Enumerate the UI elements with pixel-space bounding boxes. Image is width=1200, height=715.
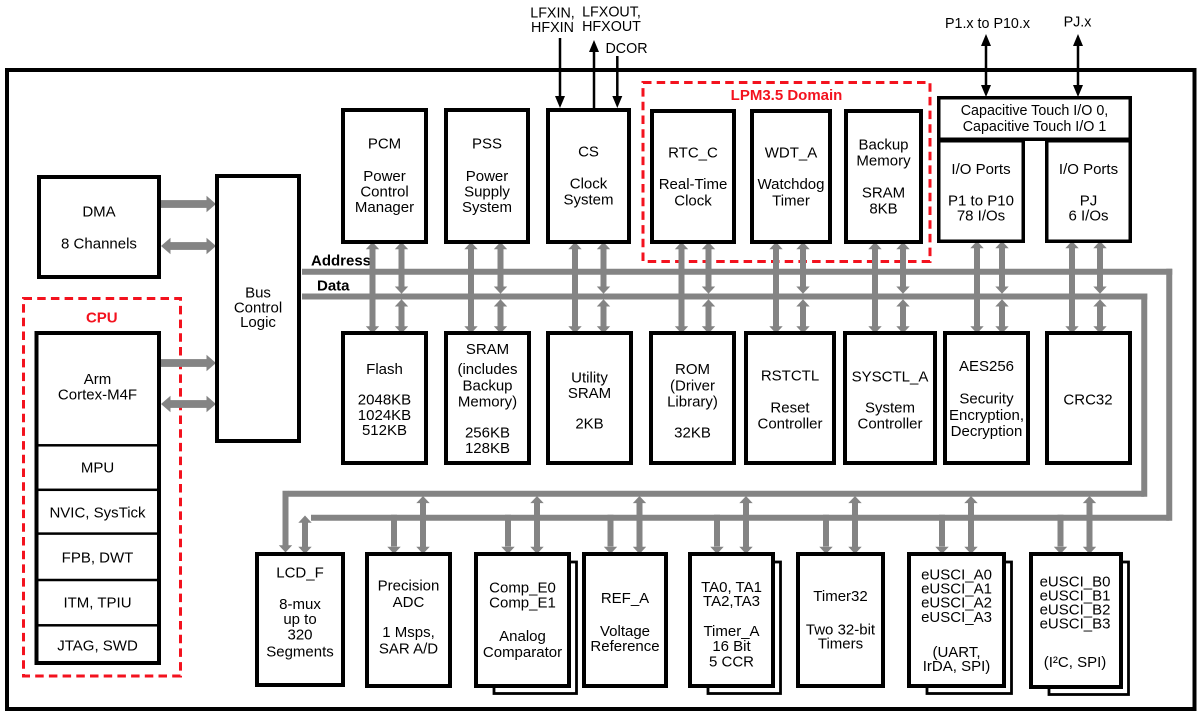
- svg-text:(I²C, SPI): (I²C, SPI): [1044, 654, 1107, 671]
- svg-text:PCM: PCM: [368, 136, 401, 153]
- svg-text:512KB: 512KB: [362, 422, 407, 439]
- svg-text:System: System: [462, 199, 512, 216]
- svg-text:NVIC, SysTick: NVIC, SysTick: [49, 505, 146, 522]
- svg-text:CPU: CPU: [86, 310, 118, 327]
- svg-text:RSTCTL: RSTCTL: [761, 368, 819, 385]
- svg-text:AES256: AES256: [959, 358, 1014, 375]
- svg-text:DMA: DMA: [82, 204, 115, 221]
- svg-text:SRAM: SRAM: [862, 185, 905, 202]
- svg-text:RTC_C: RTC_C: [668, 145, 718, 162]
- svg-text:Controller: Controller: [857, 416, 922, 433]
- svg-text:P1.x to P10.x: P1.x to P10.x: [945, 16, 1030, 32]
- svg-text:System: System: [865, 400, 915, 417]
- svg-text:JTAG, SWD: JTAG, SWD: [57, 638, 138, 655]
- svg-text:Reset: Reset: [770, 400, 810, 417]
- svg-text:Clock: Clock: [674, 193, 712, 210]
- svg-text:Address: Address: [311, 253, 371, 270]
- svg-text:ADC: ADC: [393, 594, 425, 611]
- svg-text:78 I/Os: 78 I/Os: [957, 208, 1005, 225]
- svg-text:Real-Time: Real-Time: [659, 176, 728, 193]
- svg-text:FPB, DWT: FPB, DWT: [62, 550, 134, 567]
- svg-text:Library): Library): [667, 394, 718, 411]
- svg-text:Security: Security: [959, 391, 1014, 408]
- svg-text:Clock: Clock: [570, 176, 608, 193]
- svg-text:eUSCI_A3: eUSCI_A3: [921, 609, 992, 626]
- svg-text:ITM, TPIU: ITM, TPIU: [63, 595, 131, 612]
- svg-text:Utility: Utility: [571, 370, 608, 387]
- svg-text:Power: Power: [363, 168, 406, 185]
- svg-text:Arm: Arm: [84, 371, 112, 388]
- svg-text:(includes: (includes: [457, 361, 517, 378]
- svg-text:320: 320: [287, 627, 312, 644]
- svg-text:Encryption,: Encryption,: [949, 407, 1024, 424]
- svg-text:(Driver: (Driver: [670, 378, 715, 395]
- svg-text:Logic: Logic: [240, 314, 276, 331]
- svg-text:CRC32: CRC32: [1063, 392, 1112, 409]
- svg-text:ROM: ROM: [675, 361, 710, 378]
- svg-text:Control: Control: [360, 184, 408, 201]
- svg-text:PJ.x: PJ.x: [1064, 15, 1092, 31]
- svg-text:LPM3.5 Domain: LPM3.5 Domain: [731, 87, 843, 104]
- svg-text:up to: up to: [283, 611, 316, 628]
- svg-text:HFXIN: HFXIN: [531, 20, 574, 36]
- svg-text:8KB: 8KB: [869, 201, 897, 218]
- svg-text:Controller: Controller: [757, 416, 822, 433]
- svg-text:2KB: 2KB: [575, 416, 603, 433]
- svg-text:HFXOUT: HFXOUT: [582, 19, 641, 35]
- svg-text:MPU: MPU: [81, 460, 114, 477]
- svg-text:Precision: Precision: [378, 578, 440, 595]
- svg-text:eUSCI_B3: eUSCI_B3: [1040, 616, 1111, 633]
- svg-text:Data: Data: [317, 278, 350, 295]
- svg-text:Comp_E1: Comp_E1: [489, 595, 556, 612]
- svg-text:16 Bit: 16 Bit: [712, 638, 751, 655]
- svg-text:REF_A: REF_A: [601, 590, 649, 607]
- svg-text:Manager: Manager: [355, 199, 414, 216]
- svg-text:Analog: Analog: [499, 628, 546, 645]
- svg-text:Capacitive Touch I/O 1: Capacitive Touch I/O 1: [963, 119, 1107, 135]
- svg-text:Supply: Supply: [464, 184, 510, 201]
- svg-text:SRAM: SRAM: [466, 341, 509, 358]
- svg-text:I/O Ports: I/O Ports: [1059, 161, 1118, 178]
- svg-text:Timer32: Timer32: [813, 588, 867, 605]
- svg-text:Memory): Memory): [458, 394, 517, 411]
- svg-text:1 Msps,: 1 Msps,: [382, 624, 435, 641]
- svg-text:Reference: Reference: [590, 638, 659, 655]
- svg-text:Segments: Segments: [266, 644, 334, 661]
- svg-text:IrDA, SPI): IrDA, SPI): [923, 658, 991, 675]
- svg-text:Watchdog: Watchdog: [758, 176, 825, 193]
- svg-text:256KB: 256KB: [465, 425, 510, 442]
- svg-text:Decryption: Decryption: [951, 423, 1023, 440]
- svg-text:WDT_A: WDT_A: [765, 145, 818, 162]
- svg-text:6 I/Os: 6 I/Os: [1068, 208, 1108, 225]
- svg-text:Backup: Backup: [462, 378, 512, 395]
- svg-text:TA2,TA3: TA2,TA3: [703, 593, 760, 610]
- svg-text:System: System: [563, 192, 613, 209]
- svg-text:DCOR: DCOR: [605, 41, 647, 57]
- svg-text:128KB: 128KB: [465, 440, 510, 457]
- svg-text:I/O Ports: I/O Ports: [951, 161, 1010, 178]
- svg-text:Timers: Timers: [818, 636, 863, 653]
- svg-text:Backup: Backup: [858, 137, 908, 154]
- svg-text:2048KB: 2048KB: [358, 392, 411, 409]
- svg-text:Capacitive Touch I/O 0,: Capacitive Touch I/O 0,: [961, 103, 1109, 119]
- svg-text:Cortex-M4F: Cortex-M4F: [58, 387, 137, 404]
- svg-text:SYSCTL_A: SYSCTL_A: [852, 369, 929, 386]
- svg-text:SRAM: SRAM: [568, 385, 611, 402]
- svg-text:5 CCR: 5 CCR: [709, 654, 754, 671]
- svg-text:PSS: PSS: [472, 136, 502, 153]
- svg-text:LCD_F: LCD_F: [276, 565, 324, 582]
- svg-text:Flash: Flash: [366, 361, 403, 378]
- svg-text:Power: Power: [466, 168, 509, 185]
- svg-text:8 Channels: 8 Channels: [61, 236, 137, 253]
- svg-text:Comparator: Comparator: [483, 644, 562, 661]
- svg-text:32KB: 32KB: [674, 425, 711, 442]
- svg-text:Memory: Memory: [856, 153, 911, 170]
- svg-text:SAR A/D: SAR A/D: [379, 641, 438, 658]
- svg-text:Timer: Timer: [772, 193, 810, 210]
- svg-text:CS: CS: [578, 144, 599, 161]
